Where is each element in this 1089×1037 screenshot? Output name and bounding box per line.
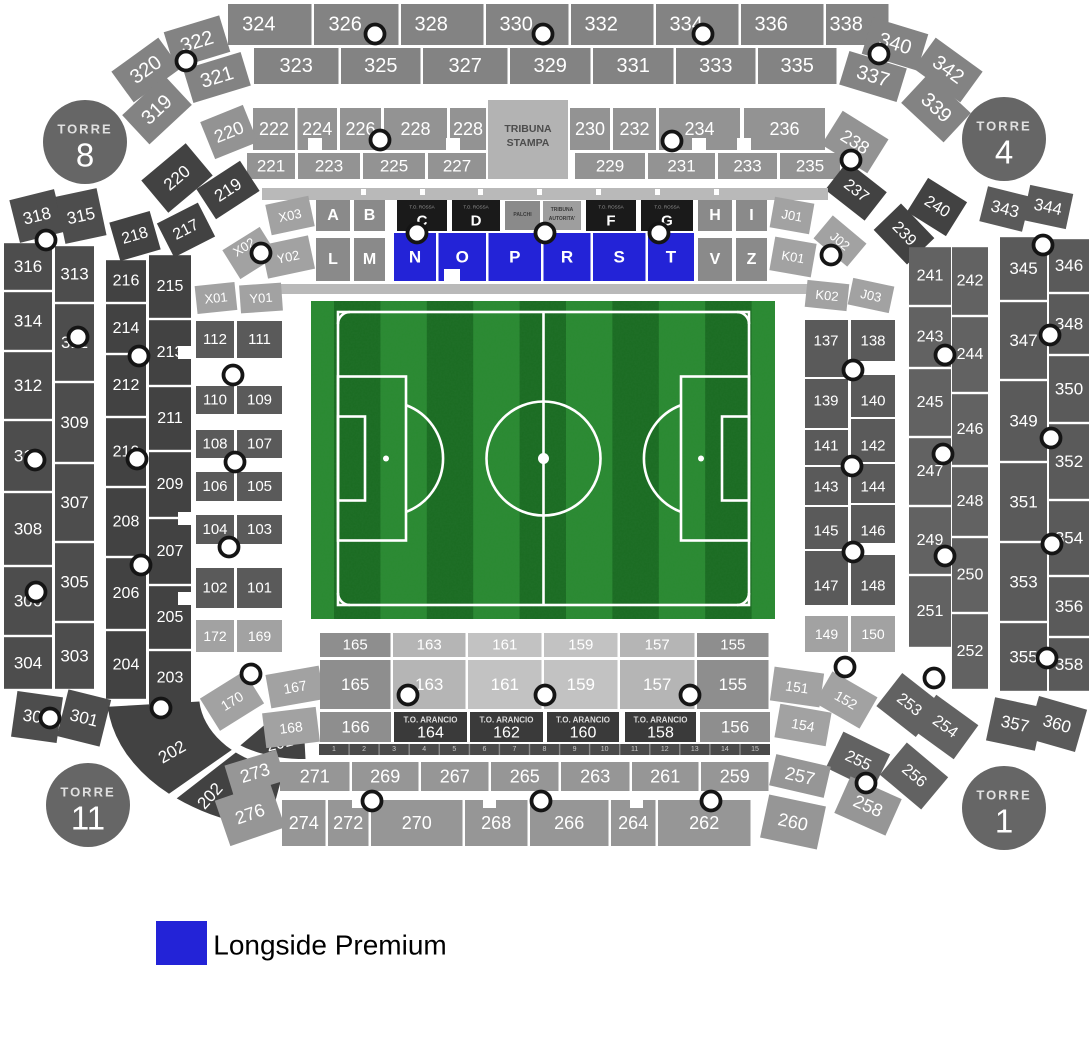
- svg-text:208: 208: [113, 514, 140, 531]
- svg-text:L: L: [328, 251, 338, 268]
- svg-text:250: 250: [957, 567, 984, 584]
- svg-text:259: 259: [720, 767, 750, 787]
- svg-text:328: 328: [415, 14, 448, 36]
- svg-text:I: I: [749, 207, 753, 224]
- svg-text:139: 139: [813, 393, 838, 410]
- svg-text:150: 150: [861, 626, 885, 642]
- svg-text:144: 144: [860, 479, 885, 496]
- svg-text:345: 345: [1009, 259, 1037, 278]
- svg-text:347: 347: [1009, 331, 1037, 350]
- svg-text:T.O. ARANCIO: T.O. ARANCIO: [556, 716, 610, 725]
- svg-text:268: 268: [481, 813, 511, 833]
- svg-text:143: 143: [813, 479, 838, 496]
- svg-text:222: 222: [259, 119, 289, 139]
- svg-text:241: 241: [917, 268, 944, 285]
- svg-text:B: B: [364, 207, 376, 224]
- svg-text:356: 356: [1055, 597, 1083, 616]
- svg-text:230: 230: [575, 119, 605, 139]
- svg-text:161: 161: [492, 637, 517, 654]
- svg-text:155: 155: [720, 637, 745, 654]
- svg-text:T.O. ARANCIO: T.O. ARANCIO: [480, 716, 534, 725]
- svg-text:236: 236: [769, 119, 799, 139]
- svg-text:314: 314: [14, 312, 42, 331]
- svg-text:149: 149: [815, 626, 839, 642]
- svg-text:AUTORITA': AUTORITA': [549, 216, 576, 222]
- svg-text:349: 349: [1009, 412, 1037, 431]
- svg-text:T.O. ROSSA: T.O. ROSSA: [654, 205, 679, 210]
- svg-text:326: 326: [329, 14, 362, 36]
- svg-text:323: 323: [280, 55, 313, 77]
- svg-text:224: 224: [302, 119, 332, 139]
- svg-text:358: 358: [1055, 655, 1083, 674]
- svg-text:165: 165: [341, 675, 369, 694]
- svg-text:2: 2: [362, 746, 366, 753]
- svg-text:1: 1: [995, 803, 1013, 840]
- svg-text:247: 247: [917, 463, 944, 480]
- svg-text:TORRE: TORRE: [976, 788, 1031, 803]
- svg-text:242: 242: [957, 273, 984, 290]
- svg-text:1: 1: [332, 746, 336, 753]
- svg-text:107: 107: [247, 436, 272, 453]
- svg-text:110: 110: [203, 392, 227, 409]
- svg-text:308: 308: [14, 520, 42, 539]
- svg-text:M: M: [363, 251, 376, 268]
- svg-text:267: 267: [440, 767, 470, 787]
- svg-text:15: 15: [751, 746, 759, 753]
- svg-text:265: 265: [510, 767, 540, 787]
- svg-text:234: 234: [684, 119, 714, 139]
- svg-text:141: 141: [813, 438, 838, 455]
- svg-text:335: 335: [781, 55, 814, 77]
- svg-text:157: 157: [643, 675, 671, 694]
- svg-text:T: T: [666, 248, 677, 267]
- svg-text:165: 165: [343, 637, 368, 654]
- svg-text:F: F: [606, 213, 615, 230]
- svg-text:261: 261: [650, 767, 680, 787]
- svg-text:R: R: [561, 248, 573, 267]
- svg-text:13: 13: [691, 746, 699, 753]
- svg-text:140: 140: [860, 393, 885, 410]
- svg-text:P: P: [509, 248, 520, 267]
- svg-text:Y01: Y01: [249, 290, 273, 307]
- svg-text:169: 169: [248, 628, 272, 644]
- svg-text:353: 353: [1009, 573, 1037, 592]
- svg-text:11: 11: [71, 800, 105, 837]
- svg-text:336: 336: [755, 14, 788, 36]
- svg-text:316: 316: [14, 257, 42, 276]
- svg-text:163: 163: [417, 637, 442, 654]
- svg-text:160: 160: [570, 725, 597, 742]
- svg-text:PALCHI: PALCHI: [513, 212, 532, 218]
- svg-text:12: 12: [661, 746, 669, 753]
- svg-text:331: 331: [617, 55, 650, 77]
- svg-text:325: 325: [364, 55, 397, 77]
- svg-text:272: 272: [333, 813, 363, 833]
- svg-text:V: V: [710, 251, 721, 268]
- svg-text:205: 205: [157, 609, 184, 626]
- svg-text:338: 338: [830, 14, 863, 36]
- svg-text:228: 228: [400, 119, 430, 139]
- svg-text:T.O. ARANCIO: T.O. ARANCIO: [404, 716, 458, 725]
- svg-text:9: 9: [573, 746, 577, 753]
- svg-text:351: 351: [1009, 493, 1037, 512]
- svg-text:232: 232: [619, 119, 649, 139]
- svg-text:212: 212: [113, 377, 140, 394]
- svg-text:223: 223: [315, 157, 343, 176]
- svg-text:101: 101: [247, 580, 272, 597]
- svg-text:264: 264: [618, 813, 648, 833]
- svg-text:158: 158: [647, 725, 674, 742]
- svg-text:307: 307: [60, 493, 88, 512]
- svg-text:263: 263: [580, 767, 610, 787]
- svg-text:244: 244: [957, 346, 984, 363]
- svg-text:245: 245: [917, 394, 944, 411]
- svg-text:A: A: [327, 207, 339, 224]
- svg-text:221: 221: [257, 157, 285, 176]
- svg-text:104: 104: [202, 521, 227, 538]
- svg-text:K02: K02: [815, 287, 840, 304]
- svg-text:8: 8: [76, 137, 94, 174]
- svg-text:269: 269: [370, 767, 400, 787]
- svg-text:TORRE: TORRE: [60, 785, 115, 800]
- svg-text:10: 10: [601, 746, 609, 753]
- svg-text:346: 346: [1055, 256, 1083, 275]
- svg-text:159: 159: [567, 675, 595, 694]
- svg-text:103: 103: [247, 521, 272, 538]
- svg-text:Longside Premium: Longside Premium: [213, 930, 446, 961]
- svg-text:142: 142: [860, 438, 885, 455]
- svg-text:8: 8: [543, 746, 547, 753]
- svg-text:106: 106: [202, 478, 227, 495]
- svg-text:14: 14: [721, 746, 729, 753]
- svg-text:274: 274: [289, 813, 319, 833]
- svg-text:4: 4: [422, 746, 426, 753]
- svg-text:5: 5: [452, 746, 456, 753]
- svg-text:N: N: [409, 248, 421, 267]
- svg-text:214: 214: [113, 320, 140, 337]
- svg-text:243: 243: [917, 329, 944, 346]
- svg-text:270: 270: [402, 813, 432, 833]
- svg-text:303: 303: [60, 647, 88, 666]
- svg-text:207: 207: [157, 543, 184, 560]
- svg-text:166: 166: [341, 718, 369, 737]
- svg-text:172: 172: [203, 628, 227, 644]
- svg-text:T.O. ROSSA: T.O. ROSSA: [598, 205, 623, 210]
- svg-text:138: 138: [860, 333, 885, 350]
- svg-text:11: 11: [631, 746, 638, 753]
- svg-text:156: 156: [721, 718, 749, 737]
- svg-text:355: 355: [1009, 648, 1037, 667]
- svg-text:6: 6: [482, 746, 486, 753]
- svg-text:157: 157: [645, 637, 670, 654]
- svg-text:231: 231: [667, 157, 695, 176]
- svg-text:168: 168: [278, 718, 303, 737]
- svg-text:229: 229: [596, 157, 624, 176]
- svg-text:T.O. ARANCIO: T.O. ARANCIO: [634, 716, 688, 725]
- svg-text:146: 146: [860, 523, 885, 540]
- svg-text:137: 137: [813, 333, 838, 350]
- svg-text:163: 163: [415, 675, 443, 694]
- svg-text:112: 112: [203, 331, 227, 348]
- svg-text:211: 211: [157, 410, 183, 427]
- svg-text:TRIBUNA: TRIBUNA: [504, 123, 552, 135]
- svg-text:161: 161: [491, 675, 519, 694]
- svg-text:246: 246: [957, 421, 984, 438]
- svg-text:102: 102: [202, 580, 227, 597]
- svg-text:330: 330: [500, 14, 533, 36]
- svg-text:H: H: [709, 207, 721, 224]
- svg-text:304: 304: [14, 654, 42, 673]
- svg-text:O: O: [456, 248, 469, 267]
- svg-text:216: 216: [113, 273, 140, 290]
- svg-text:313: 313: [60, 265, 88, 284]
- svg-text:252: 252: [957, 643, 984, 660]
- svg-text:151: 151: [784, 677, 810, 696]
- svg-text:162: 162: [493, 725, 520, 742]
- svg-text:225: 225: [380, 157, 408, 176]
- svg-text:312: 312: [14, 376, 42, 395]
- svg-text:332: 332: [585, 14, 618, 36]
- svg-text:S: S: [614, 248, 625, 267]
- svg-text:7: 7: [512, 746, 516, 753]
- svg-text:228: 228: [453, 119, 483, 139]
- svg-text:235: 235: [796, 157, 824, 176]
- svg-text:333: 333: [699, 55, 732, 77]
- svg-text:T.O. ROSSA: T.O. ROSSA: [463, 205, 488, 210]
- svg-text:145: 145: [813, 523, 838, 540]
- svg-text:209: 209: [157, 476, 184, 493]
- svg-text:TRIBUNA: TRIBUNA: [551, 207, 574, 213]
- svg-text:251: 251: [917, 603, 944, 620]
- svg-text:248: 248: [957, 493, 984, 510]
- svg-text:206: 206: [113, 585, 140, 602]
- svg-text:352: 352: [1055, 452, 1083, 471]
- svg-text:Z: Z: [747, 251, 757, 268]
- svg-text:324: 324: [242, 14, 275, 36]
- svg-text:D: D: [471, 213, 482, 230]
- svg-text:227: 227: [443, 157, 471, 176]
- svg-text:262: 262: [689, 813, 719, 833]
- svg-text:271: 271: [300, 767, 330, 787]
- svg-text:266: 266: [554, 813, 584, 833]
- svg-text:147: 147: [813, 578, 838, 595]
- svg-text:STAMPA: STAMPA: [507, 137, 550, 149]
- svg-text:204: 204: [113, 657, 140, 674]
- svg-text:305: 305: [60, 573, 88, 592]
- svg-text:164: 164: [417, 725, 444, 742]
- svg-text:203: 203: [157, 670, 184, 687]
- svg-text:155: 155: [719, 675, 747, 694]
- svg-text:3: 3: [392, 746, 396, 753]
- svg-text:111: 111: [248, 331, 271, 348]
- svg-text:108: 108: [202, 436, 227, 453]
- svg-text:105: 105: [247, 478, 272, 495]
- svg-text:TORRE: TORRE: [57, 122, 112, 137]
- svg-text:215: 215: [157, 278, 184, 295]
- svg-text:329: 329: [534, 55, 567, 77]
- svg-text:159: 159: [568, 637, 593, 654]
- svg-text:327: 327: [449, 55, 482, 77]
- svg-text:4: 4: [995, 134, 1013, 171]
- svg-text:350: 350: [1055, 380, 1083, 399]
- svg-text:148: 148: [860, 578, 885, 595]
- svg-text:T.O. ROSSA: T.O. ROSSA: [409, 205, 434, 210]
- svg-text:309: 309: [60, 413, 88, 432]
- svg-text:TORRE: TORRE: [976, 119, 1031, 134]
- svg-text:109: 109: [247, 392, 272, 409]
- svg-text:233: 233: [733, 157, 761, 176]
- svg-text:X01: X01: [204, 289, 229, 306]
